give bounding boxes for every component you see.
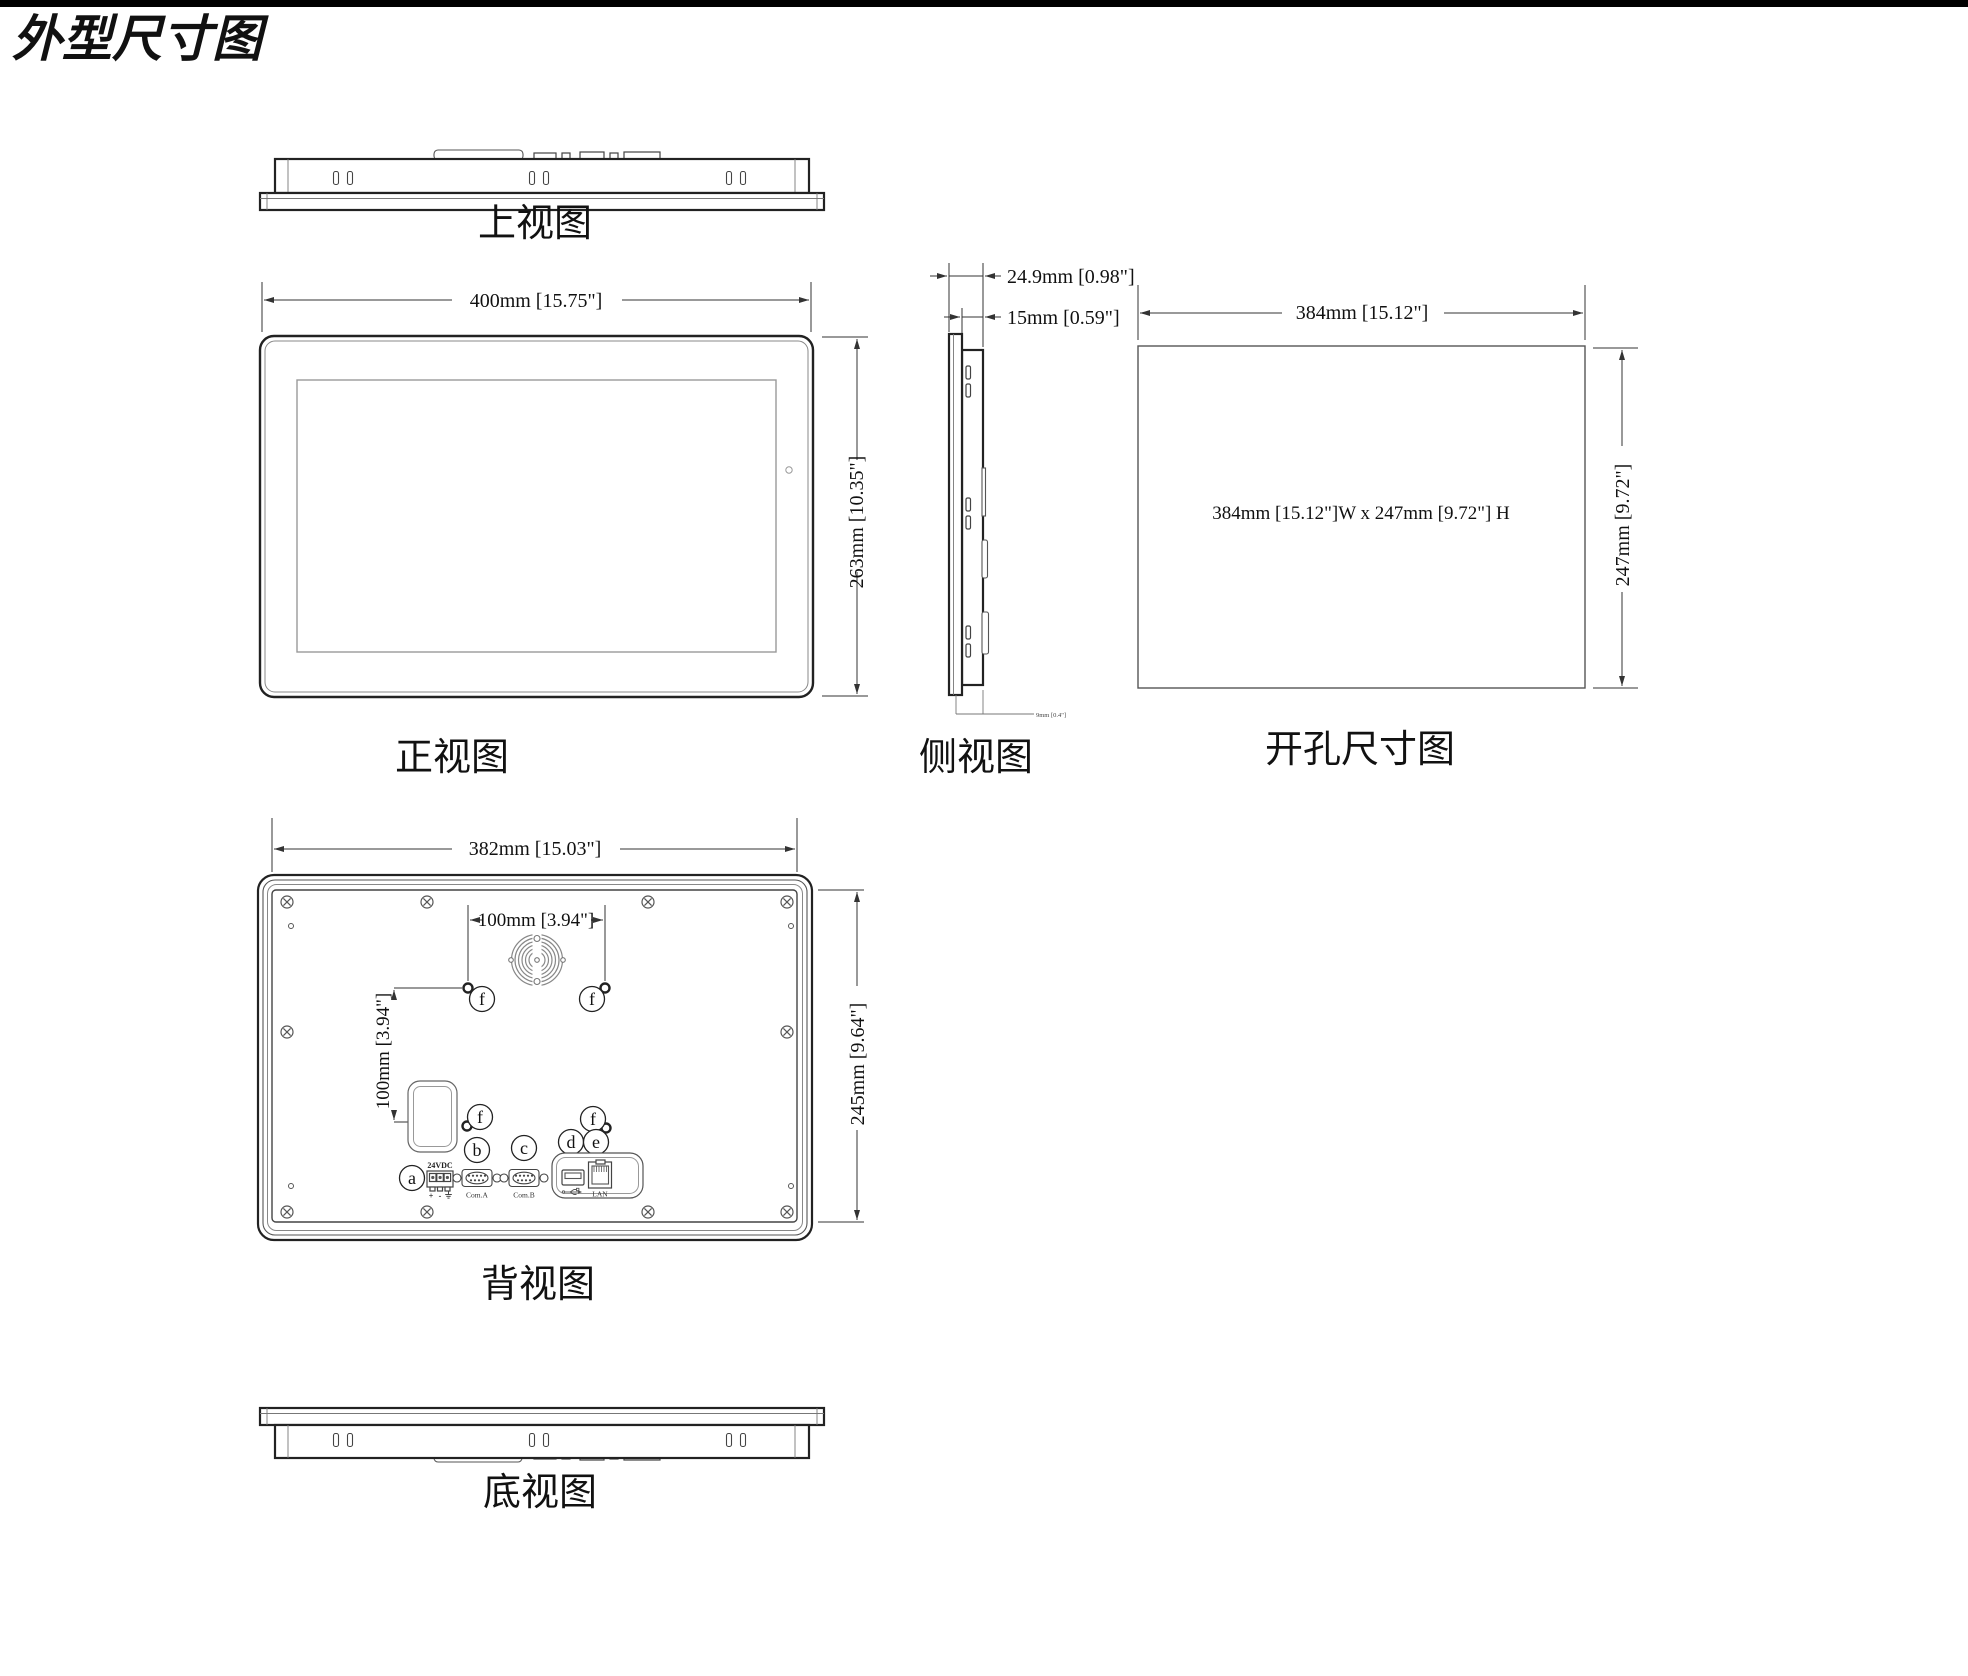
front-width-text: 400mm [15.75"] bbox=[470, 290, 603, 312]
callout-f-top-left: f bbox=[470, 987, 495, 1012]
svg-text:a: a bbox=[408, 1168, 416, 1188]
front-view: 400mm [15.75"] 263mm [10.35"] 正视图 bbox=[260, 282, 868, 779]
cutout-width-text: 384mm [15.12"] bbox=[1296, 302, 1429, 324]
svg-text:b: b bbox=[473, 1140, 482, 1160]
side-foot-dimension bbox=[956, 690, 1034, 714]
vesa-height-text: 100mm [3.94"] bbox=[373, 993, 394, 1109]
bottom-view-label: 底视图 bbox=[483, 1472, 597, 1514]
side-depth-detail-text: 9mm [0.4"] bbox=[1036, 712, 1066, 719]
callout-e: e bbox=[584, 1130, 609, 1155]
vesa-width-text: 100mm [3.94"] bbox=[478, 910, 594, 931]
side-depth-dimensions bbox=[930, 263, 1001, 347]
callout-d: d bbox=[559, 1130, 584, 1155]
power-label: 24VDC bbox=[427, 1161, 453, 1170]
cutout-note-text: 384mm [15.12"]W x 247mm [9.72"] H bbox=[1212, 503, 1510, 524]
svg-text:c: c bbox=[520, 1138, 528, 1158]
callout-a: a bbox=[400, 1166, 425, 1191]
com-b-label: Com.B bbox=[513, 1191, 534, 1200]
svg-text:f: f bbox=[479, 989, 485, 1009]
svg-text:e: e bbox=[592, 1132, 600, 1152]
com-a-label: Com.A bbox=[466, 1191, 488, 1200]
back-view: 382mm [15.03"] bbox=[258, 818, 869, 1306]
front-height-text: 263mm [10.35"] bbox=[846, 456, 868, 589]
cutout-height-text: 247mm [9.72"] bbox=[1612, 464, 1634, 587]
side-body bbox=[962, 350, 983, 685]
power-plus-label: + bbox=[429, 1192, 434, 1201]
side-depth-body-text: 15mm [0.59"] bbox=[1007, 307, 1120, 329]
callout-b: b bbox=[465, 1138, 490, 1163]
lan-label: LAN bbox=[592, 1190, 608, 1199]
svg-text:d: d bbox=[567, 1132, 576, 1152]
lan-port bbox=[589, 1160, 612, 1188]
svg-text:f: f bbox=[589, 989, 595, 1009]
side-bezel bbox=[949, 334, 962, 695]
callout-f-top-right: f bbox=[580, 987, 605, 1012]
page-top-bar bbox=[0, 0, 1968, 7]
callout-f-bottom-left: f bbox=[468, 1105, 493, 1130]
svg-text:f: f bbox=[477, 1107, 483, 1127]
back-width-text: 382mm [15.03"] bbox=[469, 838, 602, 860]
callout-c: c bbox=[512, 1136, 537, 1161]
svg-text:f: f bbox=[590, 1109, 596, 1129]
usb-lan-module: LAN bbox=[552, 1153, 643, 1199]
side-view: 24.9mm [0.98"] 15mm [0.59"] 9mm [0.4"] 侧… bbox=[919, 263, 1135, 779]
side-view-label: 侧视图 bbox=[919, 737, 1033, 779]
led-indicator bbox=[786, 467, 792, 473]
top-view-label: 上视图 bbox=[478, 203, 592, 245]
callout-f-bottom-right: f bbox=[581, 1107, 606, 1132]
power-terminal: 24VDC + - bbox=[427, 1161, 453, 1201]
page-title: 外型尺寸图 bbox=[12, 11, 269, 67]
side-depth-total-text: 24.9mm [0.98"] bbox=[1007, 266, 1135, 288]
front-screen bbox=[297, 380, 776, 652]
bottom-view: 底视图 bbox=[260, 1408, 824, 1514]
power-minus-label: - bbox=[439, 1192, 442, 1201]
dimension-drawing-page: 外型尺寸图 上视图 400mm bbox=[0, 0, 1968, 1676]
back-view-label: 背视图 bbox=[481, 1264, 595, 1306]
cutout-view-label: 开孔尺寸图 bbox=[1265, 729, 1455, 771]
drawing-canvas: 外型尺寸图 上视图 400mm bbox=[0, 0, 1968, 1676]
bottom-bezel-flange bbox=[260, 1408, 824, 1425]
usb-port bbox=[562, 1170, 584, 1185]
side-rear-bumps bbox=[982, 468, 989, 654]
cable-bracket bbox=[408, 1081, 457, 1152]
top-view: 上视图 bbox=[260, 150, 824, 245]
front-view-label: 正视图 bbox=[395, 737, 509, 779]
back-height-text: 245mm [9.64"] bbox=[847, 1003, 869, 1126]
cutout-view: 384mm [15.12"] 384mm [15.12"]W x 247mm [… bbox=[1138, 285, 1638, 771]
